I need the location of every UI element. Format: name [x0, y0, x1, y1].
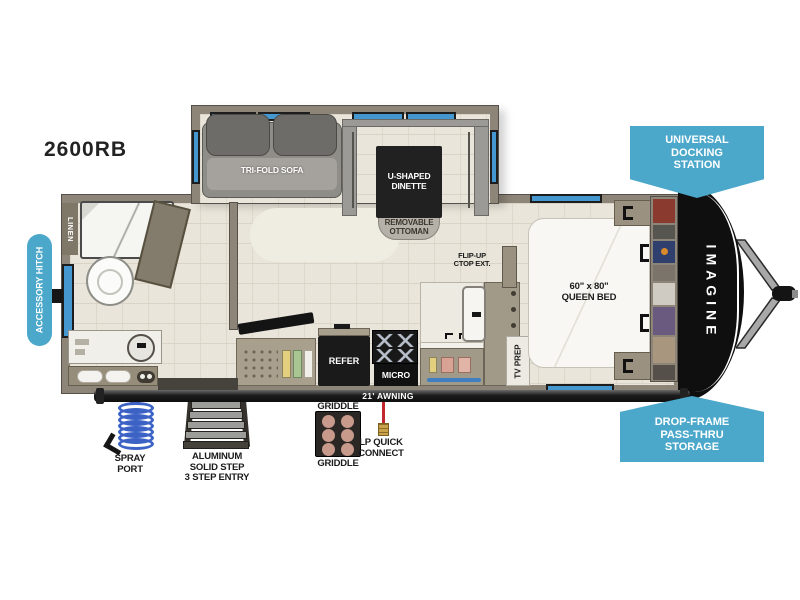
- dinette-bench-back: [342, 119, 489, 127]
- entertainment-cabinet: [236, 338, 316, 386]
- docking-line3: STATION: [630, 159, 764, 172]
- awning-end-cap: [96, 388, 104, 404]
- range-stove: [372, 330, 418, 364]
- nightstand-bracket: [623, 206, 633, 220]
- burner: [397, 334, 414, 347]
- dinette-bench-left: [342, 122, 357, 216]
- step-tread: [185, 431, 247, 439]
- towel-roll: [77, 370, 103, 383]
- toilet: [86, 256, 134, 306]
- spray-port-line2: PORT: [100, 465, 160, 476]
- lp-line: [382, 402, 385, 425]
- kitchen-sink: [462, 286, 486, 342]
- brand-label: IMAGINE: [703, 245, 719, 340]
- tri-fold-sofa: TRI-FOLD SOFA: [202, 114, 342, 200]
- wardrobe-item: [653, 225, 675, 239]
- flip-up-ctop-panel: [502, 246, 517, 288]
- steps-line3: 3 STEP ENTRY: [158, 473, 276, 484]
- nightstand-bracket: [623, 359, 633, 373]
- wardrobe-item: [653, 307, 675, 335]
- bed-label-line2: QUEEN BED: [539, 293, 639, 304]
- ottoman-label-line2: OTTOMAN: [358, 228, 460, 237]
- universal-docking-badge: UNIVERSAL DOCKING STATION: [630, 126, 764, 198]
- coupler-tip: [792, 290, 798, 298]
- ottoman-label: REMOVABLE OTTOMAN: [358, 219, 460, 237]
- burner: [376, 349, 393, 362]
- spray-port-label: SPRAY PORT: [100, 454, 160, 475]
- knob: [511, 323, 516, 328]
- wardrobe-item: [653, 199, 675, 223]
- tv-prep-label: TV PREP: [514, 344, 523, 378]
- bathroom-wall: [230, 203, 237, 329]
- linen-label: LINEN: [66, 217, 75, 242]
- storage-line1: DROP-FRAME: [620, 416, 764, 429]
- step-tread: [187, 421, 245, 429]
- queen-bed: 60" x 80" QUEEN BED: [528, 218, 650, 368]
- dinette-post: [468, 132, 470, 208]
- front-wardrobe: [650, 196, 678, 382]
- dinette-label-line2: DINETTE: [376, 182, 442, 192]
- flip-up-ctop-label: FLIP-UP CTOP EXT.: [440, 252, 504, 269]
- wardrobe-item: [653, 337, 675, 363]
- kitchen-lower-counter: [420, 348, 484, 386]
- accessory-hitch-label: ACCESSORY HITCH: [35, 247, 45, 334]
- linen-closet: LINEN: [62, 203, 78, 255]
- griddle-burner: [341, 415, 354, 428]
- cabinet-handle: [445, 333, 453, 339]
- docking-line2: DOCKING: [630, 147, 764, 160]
- front-cap: IMAGINE: [678, 184, 744, 400]
- tv-prep-cabinet: TV PREP: [506, 336, 530, 386]
- toilet-bowl: [97, 269, 123, 295]
- dinette-post: [352, 132, 354, 208]
- bathroom-vanity: [68, 330, 162, 364]
- slide-side-window: [490, 130, 498, 184]
- cabinet-item: [293, 350, 302, 378]
- flip-up-line2: CTOP EXT.: [440, 260, 504, 268]
- bed-bracket: [640, 244, 649, 262]
- dinette-label: U-SHAPED DINETTE: [376, 172, 442, 191]
- counter-item: [429, 357, 437, 373]
- nightstand-bottom: [614, 352, 652, 380]
- burner: [376, 334, 393, 347]
- microwave: MICRO: [374, 364, 418, 386]
- wardrobe-item: [653, 265, 675, 281]
- step-tread: [191, 401, 241, 409]
- hitch-receiver: [52, 289, 63, 303]
- dinette-table: U-SHAPED DINETTE: [376, 146, 442, 218]
- sofa-back-cushion: [206, 114, 270, 156]
- griddle-burner: [322, 429, 335, 442]
- towel-bar: [427, 378, 481, 382]
- refer-label: REFER: [329, 356, 360, 366]
- queen-bed-label: 60" x 80" QUEEN BED: [539, 282, 639, 303]
- sink-faucet: [472, 312, 481, 317]
- tongue-a-frame: [736, 238, 798, 350]
- wardrobe-item: [653, 241, 675, 263]
- drop-frame-storage-badge: DROP-FRAME PASS-THRU STORAGE: [620, 396, 764, 462]
- accessory-hitch-badge: ACCESSORY HITCH: [27, 234, 52, 346]
- storage-line3: STORAGE: [620, 441, 764, 454]
- towel-roll: [105, 370, 131, 383]
- step-tread: [189, 411, 243, 419]
- vanity-item: [75, 339, 89, 345]
- cabinet-item: [304, 350, 313, 378]
- lp-line2: CONNECT: [346, 449, 416, 460]
- wardrobe-dot: [661, 248, 668, 255]
- lp-connector: [378, 423, 389, 436]
- bed-bracket: [640, 314, 649, 332]
- lp-quick-connect-label: LP QUICK CONNECT: [346, 438, 416, 459]
- dinette-bench-right: [474, 122, 489, 216]
- griddle-label-bottom: GRIDDLE: [304, 459, 372, 470]
- nightstand-top: [614, 200, 652, 226]
- refer-top: [318, 328, 370, 336]
- bedroom-window-top: [530, 194, 602, 203]
- slide-side-window: [192, 130, 200, 184]
- wardrobe-item: [653, 365, 675, 380]
- storage-line2: PASS-THRU: [620, 429, 764, 442]
- towel-drawer: [68, 366, 158, 386]
- knob: [511, 291, 516, 296]
- vanity-sink: [127, 334, 155, 362]
- handle-dot: [140, 374, 145, 379]
- floorplan-canvas: 2600RB LINEN: [0, 0, 800, 600]
- knob: [511, 307, 516, 312]
- vanity-faucet: [137, 343, 146, 348]
- griddle-label-top: GRIDDLE: [306, 402, 370, 413]
- burner: [397, 349, 414, 362]
- step-platform: [183, 441, 249, 449]
- griddle-burner: [322, 415, 335, 428]
- model-number: 2600RB: [44, 138, 127, 162]
- vanity-item: [75, 349, 85, 355]
- cabinet-item: [282, 350, 291, 378]
- refer-handle: [334, 324, 350, 329]
- sofa-back-cushion: [273, 114, 337, 156]
- sofa-label: TRI-FOLD SOFA: [202, 166, 342, 176]
- counter-item: [458, 357, 471, 373]
- refrigerator: REFER: [318, 336, 370, 386]
- handle-dot: [147, 374, 152, 379]
- micro-label: MICRO: [382, 370, 410, 380]
- drawer-handle: [137, 371, 155, 383]
- speaker-grid: [242, 348, 278, 380]
- wardrobe-item: [653, 283, 675, 305]
- entry-steps-label: ALUMINUM SOLID STEP 3 STEP ENTRY: [158, 452, 276, 484]
- docking-line1: UNIVERSAL: [630, 134, 764, 147]
- griddle-burner: [322, 443, 335, 456]
- bathroom-window: [62, 264, 74, 338]
- counter-item: [441, 357, 454, 373]
